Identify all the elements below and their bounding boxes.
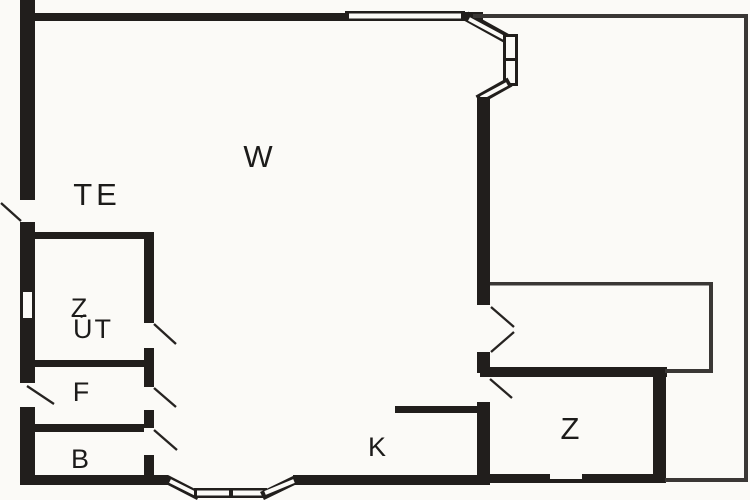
door-swing-f	[154, 388, 176, 407]
room-label-z-lower: Z	[561, 411, 580, 446]
wall-interior-seg3	[144, 410, 154, 428]
window-top	[349, 14, 461, 19]
wall-z-right	[653, 372, 666, 483]
window-z-bottom	[550, 474, 582, 479]
wall-left-upper	[20, 0, 35, 200]
wall-bottom-left	[20, 475, 168, 485]
wall-z-top	[480, 367, 667, 377]
thin-wall-top-right	[473, 14, 748, 18]
bay-window-upper	[469, 19, 508, 40]
wall-bottom-center	[293, 475, 490, 485]
wall-interior-seg2	[144, 348, 154, 387]
room-label-b: B	[71, 444, 89, 474]
wall-ut-top	[35, 232, 154, 239]
terrace-right-line	[709, 282, 713, 373]
door-swing-z	[490, 379, 512, 398]
window-left	[23, 292, 32, 318]
wall-w-right	[477, 97, 490, 305]
room-label-ut: ÚT	[73, 313, 113, 344]
thin-wall-bottom-right	[665, 478, 748, 482]
room-label-te: TE	[73, 177, 121, 212]
room-label-w: W	[243, 139, 273, 174]
door-swing-terrace-lower	[491, 332, 514, 352]
bay-window-divider	[503, 58, 518, 61]
floorplan-canvas: W TE Z ÚT F B K Z	[0, 0, 750, 500]
bay2-window-divider	[229, 488, 233, 498]
wall-ut-f-divider	[35, 360, 144, 367]
door-swing-b	[154, 430, 177, 450]
wall-left-lower	[20, 407, 35, 485]
room-label-f: F	[73, 377, 90, 407]
terrace-top-line	[490, 282, 713, 286]
wall-interior-seg1	[144, 232, 154, 323]
room-label-k: K	[368, 432, 386, 462]
door-swing-ut	[154, 324, 176, 344]
wall-z-left	[477, 402, 490, 480]
door-swing-terrace-upper	[491, 307, 514, 327]
door-swing-f-outer	[27, 386, 54, 404]
floorplan-drawing: W TE Z ÚT F B K Z	[0, 0, 750, 500]
wall-k-counter	[395, 406, 480, 413]
door-swing-entry	[1, 203, 21, 221]
wall-top	[35, 13, 347, 21]
terrace-bottom-line	[665, 369, 713, 373]
wall-f-b-divider	[35, 424, 144, 432]
thin-wall-right	[744, 14, 748, 482]
